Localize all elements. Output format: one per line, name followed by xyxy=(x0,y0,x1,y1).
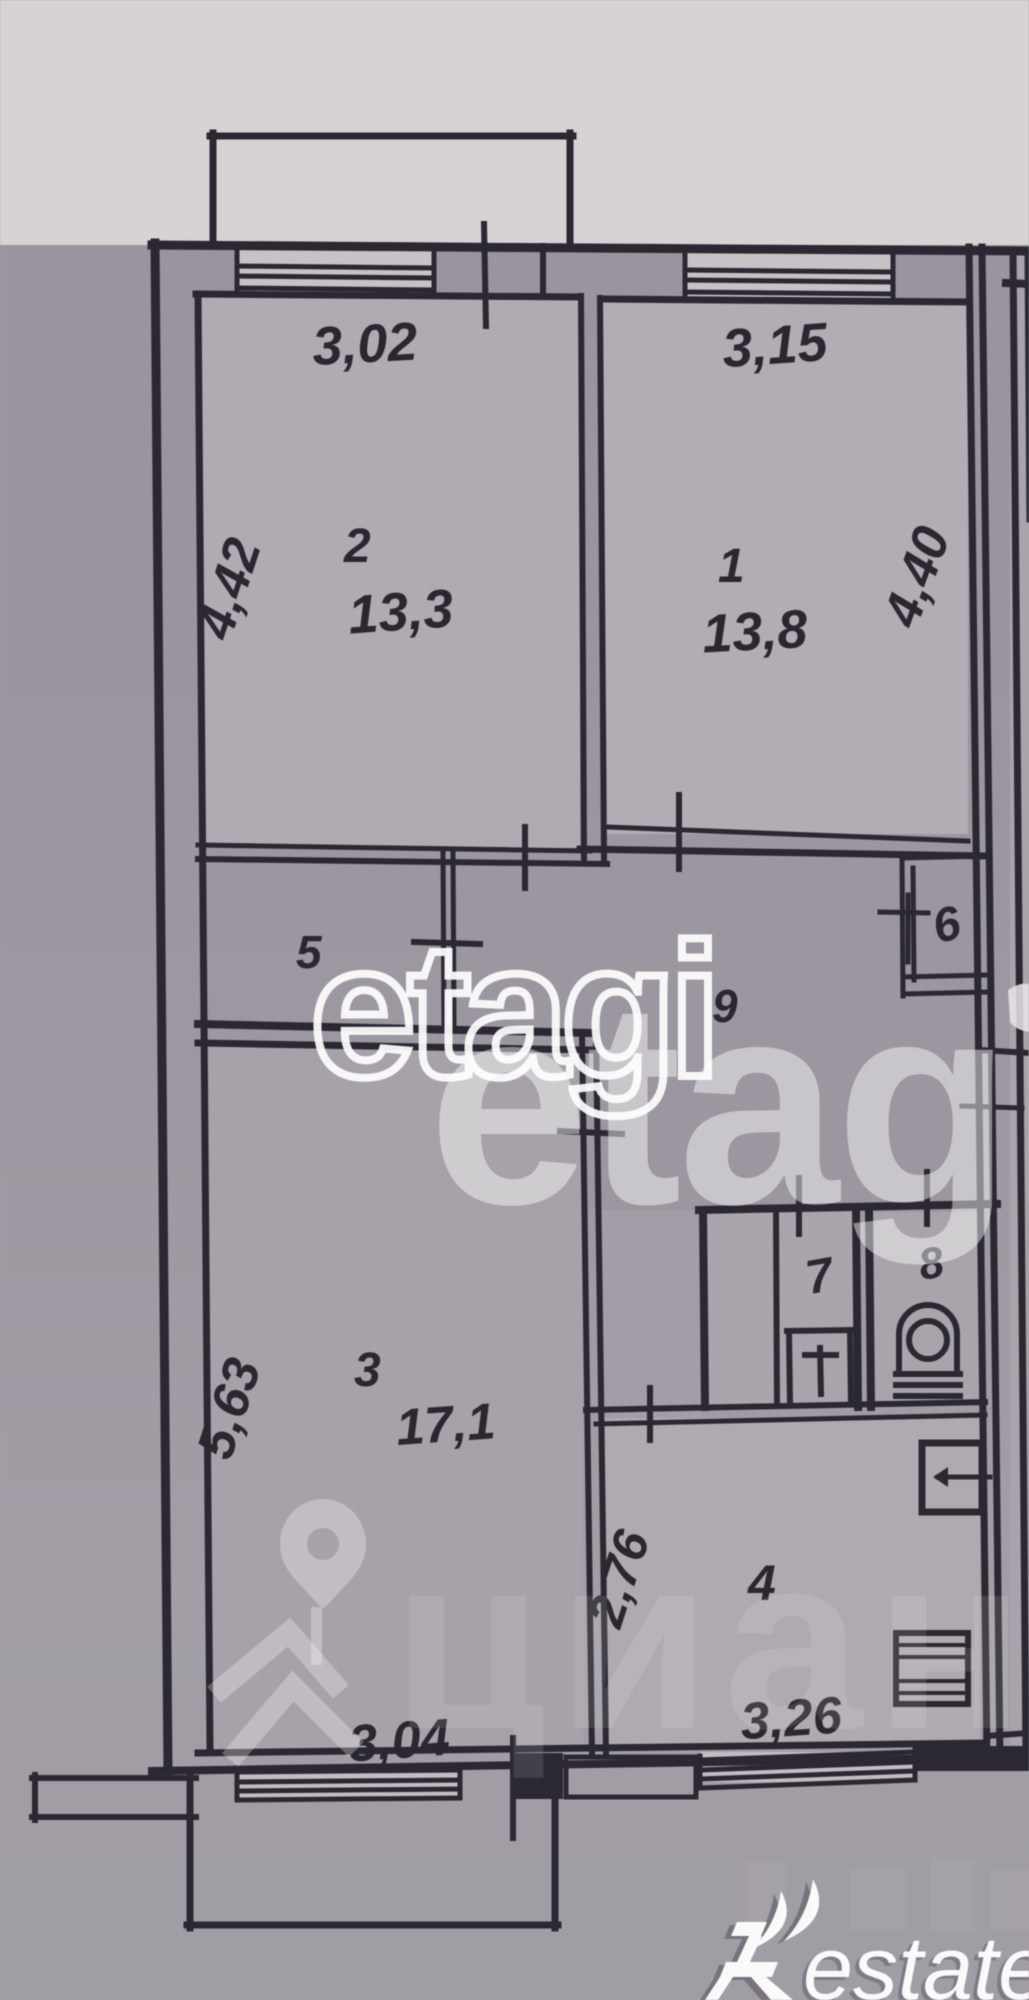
svg-text:циан: циан xyxy=(392,1502,1029,1781)
svg-text:3,15: 3,15 xyxy=(720,312,830,379)
svg-text:3,02: 3,02 xyxy=(311,312,419,377)
svg-text:13,8: 13,8 xyxy=(701,599,809,664)
svg-text:estate: estate xyxy=(803,1919,1029,2000)
svg-text:1: 1 xyxy=(718,540,745,593)
svg-text:13,3: 13,3 xyxy=(346,578,455,645)
svg-text:17,1: 17,1 xyxy=(394,1392,497,1456)
svg-text:2: 2 xyxy=(343,520,371,573)
svg-text:3: 3 xyxy=(354,1344,381,1397)
svg-text:etagi: etagi xyxy=(310,905,713,1117)
